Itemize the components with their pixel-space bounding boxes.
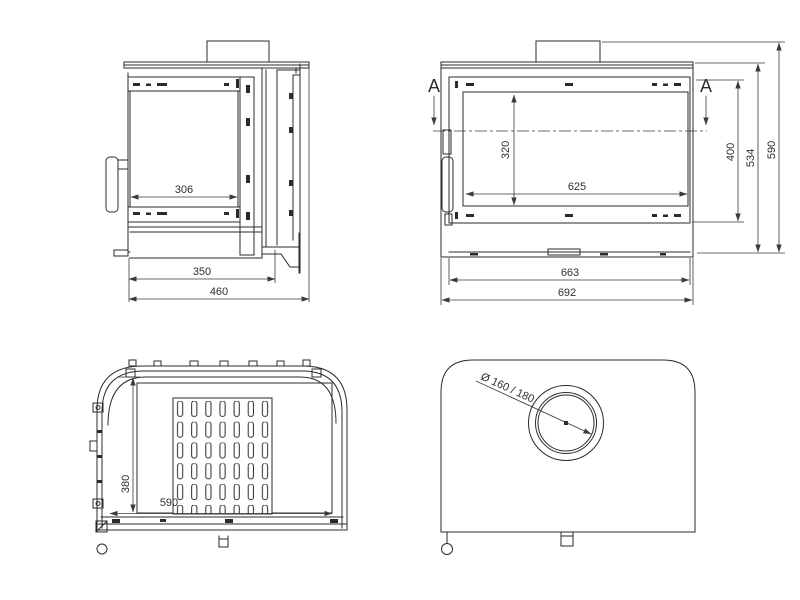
- door-handle-side: [106, 157, 118, 212]
- front-foot-side: [114, 250, 128, 256]
- section-label-left: A: [428, 76, 440, 96]
- heat-shield-side: [128, 68, 296, 73]
- dim-534-label: 534: [745, 149, 757, 167]
- dim-350-label: 350: [193, 266, 211, 278]
- flue-leader-line: [476, 381, 591, 434]
- front-view-dimensions: 320 625 400 534 590 663 692: [441, 42, 785, 305]
- flue-diameter-label: Ø 160 / 180: [479, 371, 536, 406]
- section-label-right: A: [700, 76, 712, 96]
- body-outline-front: [441, 68, 693, 257]
- leg-section: [97, 544, 107, 554]
- hinge-upper: [443, 130, 451, 154]
- dim-590b-label: 590: [160, 497, 178, 509]
- dim-625-label: 625: [568, 181, 586, 193]
- door-handle-front: [442, 157, 453, 212]
- front-vent-marks: [455, 81, 681, 256]
- flue-collar-side: [207, 41, 269, 62]
- dim-692-label: 692: [558, 287, 576, 299]
- flue-collar-front: [536, 41, 600, 62]
- side-view: 306 350 460: [106, 41, 309, 302]
- front-wall-band: [97, 517, 347, 524]
- fire-grate: [173, 398, 272, 514]
- dim-380-label: 380: [120, 475, 132, 493]
- leg-top: [442, 544, 453, 555]
- dim-590-label: 590: [766, 141, 778, 159]
- dim-460-label: 460: [210, 286, 228, 298]
- section-aa-view: 380 590: [90, 360, 347, 554]
- center-foot-section: [219, 536, 228, 547]
- handle-mount: [118, 160, 128, 169]
- panel-vent-marks: [133, 79, 293, 220]
- front-view: A A 320 625 400 534 590 663 692: [428, 41, 785, 305]
- door-frame-front: [449, 77, 690, 223]
- top-view: Ø 160 / 180: [441, 360, 695, 555]
- dim-663-label: 663: [561, 267, 579, 279]
- dim-320-label: 320: [500, 141, 512, 159]
- technical-drawing-page: { "drawing": { "background": "#ffffff", …: [0, 0, 800, 600]
- side-view-dimensions: 306 350 460: [129, 68, 309, 302]
- dim-306-label: 306: [175, 184, 193, 196]
- drawing-sheet: 306 350 460: [0, 0, 800, 600]
- rear-convection-panel: [262, 64, 300, 273]
- center-foot-top: [561, 533, 573, 546]
- rear-bracket: [262, 233, 300, 273]
- top-tabs: [126, 360, 321, 377]
- door-band-bottom: [128, 207, 240, 222]
- door-column: [240, 77, 254, 255]
- door-band-top: [128, 77, 240, 91]
- dim-400-label: 400: [725, 143, 737, 161]
- ash-plinth-side: [128, 222, 262, 258]
